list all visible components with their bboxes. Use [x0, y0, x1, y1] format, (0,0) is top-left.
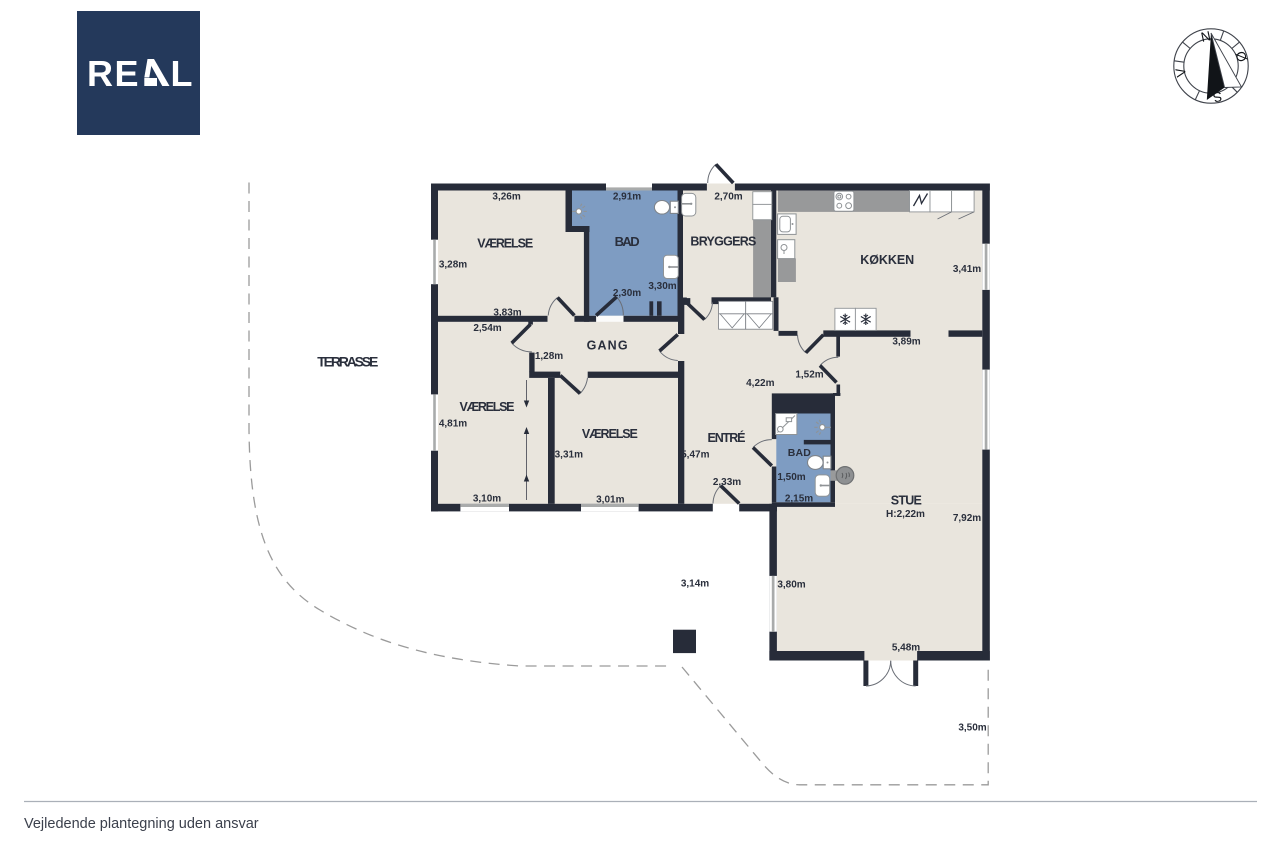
svg-text:BAD: BAD: [615, 234, 640, 249]
svg-text:2,70m: 2,70m: [714, 192, 742, 203]
svg-text:TERRASSE: TERRASSE: [317, 353, 378, 369]
svg-text:2,33m: 2,33m: [713, 477, 741, 488]
svg-text:VÆRELSE: VÆRELSE: [460, 400, 515, 414]
svg-text:3,26m: 3,26m: [492, 192, 520, 203]
svg-text:3,50m: 3,50m: [958, 723, 986, 734]
svg-text:3,10m: 3,10m: [473, 494, 501, 505]
svg-text:VÆRELSE: VÆRELSE: [582, 427, 638, 441]
svg-text:3,14m: 3,14m: [681, 579, 709, 590]
svg-text:1,52m: 1,52m: [795, 370, 823, 381]
svg-text:E: E: [115, 53, 139, 94]
svg-text:3,41m: 3,41m: [953, 264, 981, 275]
svg-text:5,48m: 5,48m: [892, 643, 920, 654]
svg-text:2,54m: 2,54m: [473, 323, 501, 334]
svg-text:5,47m: 5,47m: [681, 450, 709, 461]
svg-text:2,30m: 2,30m: [613, 288, 641, 299]
svg-text:3,89m: 3,89m: [892, 337, 920, 348]
svg-text:3,83m: 3,83m: [493, 308, 521, 319]
svg-text:3,01m: 3,01m: [596, 495, 624, 506]
svg-text:ENTRÉ: ENTRÉ: [708, 430, 746, 445]
svg-text:BAD: BAD: [788, 447, 811, 459]
svg-text:STUE: STUE: [891, 493, 922, 507]
svg-text:2,15m: 2,15m: [785, 494, 813, 505]
svg-text:1,50m: 1,50m: [777, 472, 805, 483]
svg-text:H:2,22m: H:2,22m: [886, 509, 925, 520]
svg-text:3,28m: 3,28m: [439, 260, 467, 271]
svg-text:VÆRELSE: VÆRELSE: [477, 237, 533, 251]
svg-text:BRYGGERS: BRYGGERS: [690, 235, 756, 249]
svg-text:7,92m: 7,92m: [953, 513, 981, 524]
svg-text:3,80m: 3,80m: [777, 580, 805, 591]
svg-text:1,28m: 1,28m: [535, 351, 563, 362]
svg-text:3,30m: 3,30m: [648, 281, 676, 292]
svg-text:3,31m: 3,31m: [555, 450, 583, 461]
svg-text:Vejledende plantegning uden an: Vejledende plantegning uden ansvar: [24, 816, 259, 832]
svg-text:R: R: [87, 53, 113, 94]
svg-text:GANG: GANG: [587, 338, 628, 352]
svg-text:4,22m: 4,22m: [746, 378, 774, 389]
svg-text:KØKKEN: KØKKEN: [860, 253, 914, 267]
svg-text:L: L: [171, 53, 193, 94]
svg-text:2,91m: 2,91m: [613, 192, 641, 203]
svg-text:4,81m: 4,81m: [439, 419, 467, 430]
